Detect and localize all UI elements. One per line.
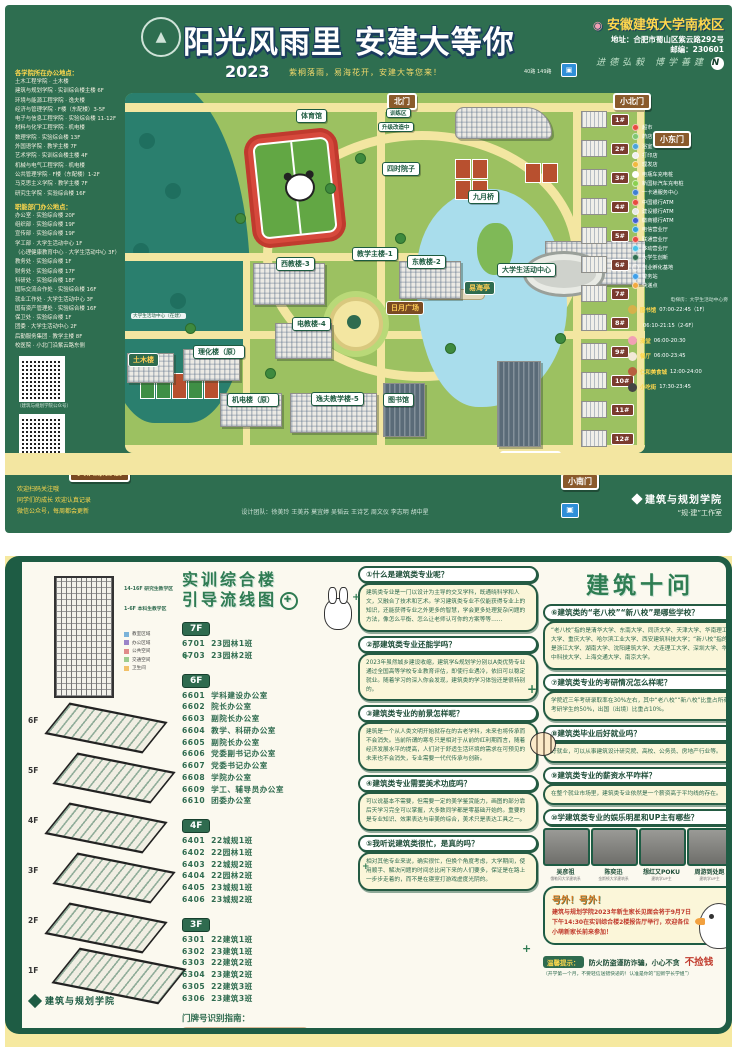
college-item: 外国语学院 · 教学主楼 7F [15, 143, 127, 152]
floor-section-6f: 6F 6601学科建设办公室6602院长办公室6603副院长办公室6604教学、… [182, 668, 354, 808]
goose-doodle-icon: ♥ [699, 903, 732, 949]
qa-block: ⑦建筑类专业的考研情况怎么样呢？ 学院近三年考研录取率在30%左右，其中“老八校… [543, 674, 732, 721]
question-pill: ④建筑类专业需要美术功底吗？ [358, 775, 538, 792]
floor-badge: 6F [182, 674, 210, 688]
poster-frame: 14-16F 研究生教学区 1-6F 本科生教学区 教室区域办公区域公共空间交通… [5, 556, 732, 1034]
floor-mark: 6F [28, 716, 38, 725]
design-credits: 设计团队：徐美玲 王美苏 莫宜婷 吴韬云 王诗艺 周文仪 李志明 胡中星 [125, 507, 545, 516]
qa-main-title: 建筑十问 [543, 566, 732, 600]
place-time: 06:00-23:45 [654, 353, 686, 359]
legend-dot-icon [632, 171, 639, 178]
departments-header: 职能部门办公地点： [15, 202, 127, 211]
rabbit-doodle-icon [324, 598, 352, 630]
dorm-building-icon [581, 256, 607, 273]
gate-north-small: 小北门 [613, 93, 651, 110]
legend-dot-icon [632, 180, 639, 187]
sparkle-icon: + [362, 862, 370, 872]
legend-row: 理发店 [632, 160, 728, 169]
room-list: 670123园林1班670323园林2班 [182, 638, 354, 662]
campus-map-poster: ▲ 阳光风雨里 安建大等你 2023 紫桐落雨，易海花开，安建大等您来！ 40路… [5, 5, 732, 533]
room-directory: 实训综合楼 引导流线图✚ 7F 670123园林1班670323园林2班 6F … [182, 570, 354, 1034]
legend-dot-icon [632, 254, 639, 261]
department-item: 后勤服务集团 · 教学主楼 8F [15, 333, 127, 342]
floor-mark: 3F [28, 866, 38, 875]
hours-row: 仁和美食城12:00-24:00 [628, 367, 728, 376]
legend-label: 建设银行ATM [642, 208, 674, 215]
dorm-building-icon [581, 401, 607, 418]
college-item: 马克思主义学院 · 教学主楼 7F [15, 180, 127, 189]
floor-section-4f: 4F 640122城规1班640222园林1班640322城规2班640422园… [182, 813, 354, 906]
hours-row: 小吃街17:30-23:45 [628, 383, 728, 392]
hours-row: 餐厅06:00-23:45 [628, 352, 728, 361]
door-guide-title: 门牌号识别指南： [182, 1012, 354, 1024]
question-pill: ⑨建筑类专业的薪资水平咋样？ [543, 767, 732, 784]
legend-dot-icon [632, 161, 639, 168]
celebrity-card: 周游到处跑建筑学UP主 [687, 828, 732, 882]
college-item: 材料与化学工程学院 · 机电楼 [15, 124, 127, 133]
tree-icon [445, 343, 456, 354]
floor-section-3f: 3F 630122建筑1班630223建筑1班630322建筑2班630423建… [182, 912, 354, 1005]
celebrity-card: 想红又POKU建筑学UP主 [639, 828, 684, 882]
celebrity-photo [543, 828, 590, 866]
slogan-line: 微信公众号，每周都会更新 [17, 507, 91, 518]
college-item: 公共管理学院 · F楼（东配楼）1-2F [15, 171, 127, 180]
room-row: 6609学工、辅导员办公室 [182, 784, 354, 796]
axonometric-diagram: 14-16F 研究生教学区 1-6F 本科生教学区 教室区域办公区域公共空间交通… [28, 570, 180, 1015]
celebrity-name: 吴彦祖 [543, 867, 588, 876]
legend-row: 移动营业厅 [632, 244, 728, 253]
dorm-number-label: 5# [611, 230, 629, 242]
floor-plate [52, 853, 175, 904]
campus-motto: 进德弘毅 博学善建N [593, 57, 724, 70]
dorm-number-label: 4# [611, 201, 629, 213]
college-name: 建筑与规划学院 [633, 491, 722, 506]
legend-row: 中国银行ATM [632, 197, 728, 206]
tower-note-grad: 14-16F 研究生教学区 [124, 586, 173, 593]
dorm-number-label: 7# [611, 288, 629, 300]
department-item: 财务处 · 实验综合楼 17F [15, 268, 127, 277]
tips-line: 温馨提示： 防火防盗谨防诈骗，小心不贪 不捡钱 （开学第一个月，不要轻信送错快递… [543, 950, 732, 977]
room-row: 6601学科建设办公室 [182, 690, 354, 702]
answer-bubble: 建筑是一个从人类文明开始就存在的古老学科，未来也将传承而不会消失。当前所谓的寒冬… [358, 722, 538, 771]
legend-square-label: 教室区域 [132, 631, 150, 637]
tree-icon [235, 213, 246, 224]
room-row: 670123园林1班 [182, 638, 354, 650]
dorm-number-label: 3# [611, 172, 629, 184]
bus-routes-note: 40路 149路 [524, 68, 552, 75]
celebrity-name: 陈奕迅 [591, 867, 636, 876]
question-pill: ①什么是建筑类专业呢？ [358, 566, 538, 583]
gate-south-small: 小南门 [561, 473, 599, 490]
poster-subtitle: 紫桐落雨，易海花开，安建大等您来！ [289, 67, 442, 78]
legend-label: 电信营业厅 [642, 226, 668, 233]
department-item: 就业工作处 · 大学生活动中心 3F [15, 296, 127, 305]
celebrity-photo [591, 828, 638, 866]
footer-college-block: 建筑与规划学院 “规·建”工作室 [633, 491, 722, 518]
legend-label: 浴室 [642, 143, 652, 150]
legend-label: 一卡通服务中心 [642, 189, 678, 196]
question-pill: ⑩学建筑类专业的娱乐明星和UP主有哪些？ [543, 809, 732, 826]
tower-note-undergrad: 1-6F 本科生教学区 [124, 606, 166, 613]
celebrity-caption: 建筑学UP主 [687, 876, 732, 882]
college-item: 研究生学院 · 实验综合楼 16F [15, 190, 127, 199]
legend-dot-icon [632, 264, 639, 271]
place-icon [628, 383, 637, 392]
qa-block: ⑤我听说建筑类很忙，是真的吗？相对其他专业来说，确实很忙，但换个角度考虑，大学期… [358, 835, 538, 891]
room-row: 630623建筑3班 [182, 993, 354, 1005]
label-activity-center: 大学生活动中心 [497, 263, 556, 277]
celebrity-card: 吴彦祖俄勒冈大学建筑系 [543, 828, 588, 882]
room-row: 6608学院办公室 [182, 772, 354, 784]
tree-icon [185, 323, 196, 334]
floor-mark: 4F [28, 816, 38, 825]
celebrity-photo [639, 828, 686, 866]
door-number-card: 6606 [182, 1027, 308, 1034]
place-time: 06:00-20:30 [654, 338, 686, 344]
legend-square-label: 交通空间 [132, 657, 150, 663]
room-list: 640122城规1班640222园林1班640322城规2班640422园林2班… [182, 835, 354, 906]
college-item: 数理学院 · 实验综合楼 13F [15, 134, 127, 143]
poster-title: 阳光风雨里 安建大等你 [183, 17, 515, 62]
celebrity-row: 吴彦祖俄勒冈大学建筑系陈奕迅金斯顿大学建筑系想红又POKU建筑学UP主周游到处跑… [543, 828, 732, 882]
celebrity-caption: 俄勒冈大学建筑系 [543, 876, 588, 882]
tips-emphasis: 不捡钱 [685, 957, 714, 968]
answer-bubble: 好就业，可以从事建筑设计研究院、高校、公务员、房地产行业等。 [543, 742, 732, 763]
elevator-note: 电梯房：大学生活动中心旁 [670, 296, 728, 303]
qr-code-college [19, 356, 65, 402]
tennis-court [525, 163, 541, 183]
celebrity-name: 周游到处跑 [687, 867, 732, 876]
campus-info: ◉ 安徽建筑大学南校区 地址：合肥市蜀山区紫云路292号 邮编：230601 进… [593, 17, 724, 70]
legend-square-icon [124, 657, 129, 662]
legend-dot-icon [632, 152, 639, 159]
legend-dot-icon [632, 199, 639, 206]
floor-plate [52, 753, 175, 804]
college-item: 电子与信息工程学院 · 实验综合楼 11-12F [15, 115, 127, 124]
building-guide-poster: 14-16F 研究生教学区 1-6F 本科生教学区 教室区域办公区域公共空间交通… [5, 556, 732, 1047]
legend-label: 联通营业厅 [642, 236, 668, 243]
place-icon [628, 367, 637, 376]
celebrity-photo [687, 828, 732, 866]
tennis-court [472, 159, 488, 179]
department-item: 教务处 · 实验综合楼 1F [15, 258, 127, 267]
legend-row: 浴室 [632, 142, 728, 151]
map-pin-icon: ◉ [593, 19, 603, 32]
legend-square-label: 卫生间 [132, 665, 146, 671]
celebrity-name: 想红又POKU [639, 867, 684, 876]
legend-dot-icon [632, 236, 639, 243]
legend-row: 警务站 [632, 272, 728, 281]
answer-bubble: 2023年虽然城乡建设收缩，建筑学&规划学分别以A类优势专业通过全国高等学校专业… [358, 653, 538, 702]
south-boundary [5, 453, 732, 475]
college-item: 环境与能源工程学院 · 逸夫楼 [15, 97, 127, 106]
legend-row: 徽商银行ATM [632, 216, 728, 225]
tree-icon [139, 133, 155, 149]
departments-list: 办公室 · 实验综合楼 20F组织部 · 实验综合楼 19F宣传部 · 实验综合… [15, 212, 127, 351]
tips-body: 防火防盗谨防诈骗，小心不贪 [589, 959, 680, 967]
room-row: 640422园林2班 [182, 870, 354, 882]
room-row: 6610团委办公室 [182, 795, 354, 807]
question-pill: ③建筑类专业的前景怎样呢？ [358, 705, 538, 722]
dorm-number-label: 9# [611, 346, 629, 358]
department-item: 国际交流合作处 · 实验综合楼 16F [15, 286, 127, 295]
tree-icon [165, 183, 181, 199]
dorm-number-label: 8# [611, 317, 629, 329]
department-item: （心理健康教育中心 · 大学生活动中心 3F） [15, 249, 127, 258]
sparkle-icon: + [182, 652, 190, 662]
label-mech: 机电楼（原） [227, 393, 279, 407]
legend-label: 新国标汽车充电桩 [642, 180, 684, 187]
label-main-teaching: 教学主楼-1 [352, 247, 398, 261]
question-pill: ⑦建筑类专业的考研情况怎么样呢？ [543, 674, 732, 691]
question-pill: ⑥建筑类的“老八校”“新八校”是哪些学校？ [543, 604, 732, 621]
floor-plate [44, 903, 167, 954]
legend-row: 创业孵化基地 [632, 262, 728, 271]
room-list: 6601学科建设办公室6602院长办公室6603副院长办公室6604教学、科研办… [182, 690, 354, 808]
department-item: 宣传部 · 实验综合楼 19F [15, 230, 127, 239]
college-item: 建筑与规划学院 · 实训综合楼主楼 6F [15, 87, 127, 96]
legend-square-label: 办公区域 [132, 640, 150, 646]
college-signature: 建筑与规划学院 [30, 994, 115, 1007]
poster-year: 2023 [225, 62, 270, 81]
campus-address: 地址：合肥市蜀山区紫云路292号 [593, 35, 724, 45]
department-item: 办公室 · 实验综合楼 20F [15, 212, 127, 221]
tree-icon [265, 368, 276, 379]
legend-dot-icon [632, 133, 639, 140]
place-name: 小吃街 [640, 383, 656, 391]
label-library: 图书馆 [383, 393, 414, 407]
legend-label: 超市 [642, 124, 652, 131]
legend-label: 中国银行ATM [642, 199, 674, 206]
dorm-building-icon [581, 314, 607, 331]
legend-square-label: 公共空间 [132, 648, 150, 654]
dorm-building-icon [581, 111, 607, 128]
slogan-line: 欢迎扫码关注哦 [17, 485, 91, 496]
legend-label: 理发店 [642, 161, 658, 168]
floorplan-legend-row: 公共空间 [124, 647, 150, 656]
answer-bubble: 在整个就业市场里，建筑类专业依然是一个薪资高于平均线的存在。 [543, 784, 732, 805]
legend-square-icon [124, 666, 129, 671]
question-pill: ⑤我听说建筑类很忙，是真的吗？ [358, 835, 538, 852]
qa-column-left: ①什么是建筑类专业呢？建筑类专业是一门以设计为主导的交叉学科，既通晓科学和人文，… [358, 566, 538, 891]
label-civil: 土木楼 [128, 353, 159, 367]
tree-icon [170, 293, 186, 309]
legend-label: 快递点 [642, 282, 658, 289]
room-row: 6603副院长办公室 [182, 713, 354, 725]
map-legend: 超市药店浴室打印店理发店电瓶车充电桩新国标汽车充电桩一卡通服务中心中国银行ATM… [632, 123, 728, 290]
department-item: 国有资产管理处 · 实验综合楼 16F [15, 305, 127, 314]
tree-icon [395, 233, 406, 244]
legend-row: 电瓶车充电桩 [632, 169, 728, 178]
qa-block: ⑩学建筑类专业的娱乐明星和UP主有哪些？ 吴彦祖俄勒冈大学建筑系陈奕迅金斯顿大学… [543, 809, 732, 882]
tennis-court [455, 159, 471, 179]
legend-row: 超市 [632, 123, 728, 132]
dorm-building-icon [581, 140, 607, 157]
colleges-header: 各学院所在办公地点： [15, 68, 127, 77]
college-item: 土木工程学院 · 土木楼 [15, 78, 127, 87]
legend-row: 联通营业厅 [632, 235, 728, 244]
legend-row: 一卡通服务中心 [632, 188, 728, 197]
label-west-teaching: 西教楼-3 [276, 257, 315, 271]
legend-dot-icon [632, 143, 639, 150]
floor-badge: 3F [182, 918, 210, 932]
place-time: 17:30-23:45 [659, 384, 691, 390]
label-upgrading: 升级改造中 [378, 122, 414, 132]
university-seal-icon: ▲ [141, 17, 181, 57]
room-row: 6605副院长办公室 [182, 737, 354, 749]
place-name: 图书馆 [640, 306, 656, 314]
room-row: 630322建筑2班 [182, 957, 354, 969]
college-logo-icon [631, 493, 642, 504]
dorm-row: 11# [581, 395, 643, 424]
floor-badge: 7F [182, 622, 210, 636]
floorplan-legend-row: 办公区域 [124, 639, 150, 648]
tree-icon [325, 183, 336, 194]
qa-block: ④建筑类专业需要美术功底吗？可以说基本不需要，但需要一定的美学鉴赏能力，画图的部… [358, 775, 538, 831]
tiger-doodle-icon [530, 732, 556, 756]
label-plaza: 日月广场 [386, 301, 424, 315]
hours-row: 澡堂06:00-20:30 [628, 336, 728, 345]
opening-hours: 图书馆07:00-22:45（1F）06:10-21:15（2-6F）澡堂06:… [628, 305, 728, 398]
legend-dot-icon [632, 208, 639, 215]
colleges-list: 土木工程学院 · 土木楼建筑与规划学院 · 实训综合楼主楼 6F环境与能源工程学… [15, 78, 127, 199]
legend-row: 大学生创新 [632, 253, 728, 262]
library-building [383, 383, 425, 437]
room-row: 630522建筑3班 [182, 981, 354, 993]
room-row: 6604教学、科研办公室 [182, 725, 354, 737]
sidebar-slogans: 欢迎扫码关注哦同学们的成长 欢迎认真记录微信公众号，每周都会更新 [17, 485, 91, 517]
dorm-number-label: 6# [611, 259, 629, 271]
dorm-building-icon [581, 343, 607, 360]
celebrity-caption: 建筑学UP主 [639, 876, 684, 882]
place-time: 06:10-21:15（2-6F） [643, 322, 697, 329]
caption-under-construction: 大学生活动中心（在建） [131, 313, 186, 319]
college-item: 艺术学院 · 实训综合楼主楼 4F [15, 152, 127, 161]
place-name: 澡堂 [640, 337, 651, 345]
department-item: 保卫处 · 实验综合楼 1F [15, 314, 127, 323]
bus-stop-icon: ▣ [561, 503, 579, 518]
floorplan-legend-row: 卫生间 [124, 664, 150, 673]
poster-page: ▲ 阳光风雨里 安建大等你 2023 紫桐落雨，易海花开，安建大等您来！ 40路… [0, 0, 737, 1052]
legend-dot-icon [632, 273, 639, 280]
dorm-building-icon [581, 430, 607, 447]
department-item: 学工部 · 大学生活动中心 1F [15, 240, 127, 249]
sparkle-icon: + [522, 942, 531, 955]
room-row: 640523城规1班 [182, 882, 354, 894]
legend-label: 电瓶车充电桩 [642, 171, 673, 178]
label-gym: 体育馆 [296, 109, 327, 123]
qa-block: ②那建筑类专业还能学吗？2023年虽然城乡建设收缩，建筑学&规划学分别以A类优势… [358, 636, 538, 702]
floor-plate [44, 703, 167, 754]
answer-bubble: 建筑类专业是一门以设计为主导的交叉学科，既通晓科学和人文，又融合了技术和艺术。学… [358, 583, 538, 632]
slogan-line: 同学们的成长 欢迎认真记录 [17, 496, 91, 507]
place-icon [628, 321, 637, 330]
dorm-building-icon [581, 372, 607, 389]
legend-dot-icon [632, 226, 639, 233]
room-row: 640623城规2班 [182, 894, 354, 906]
answer-bubble: 相对其他专业来说，确实很忙，但换个角度考虑，大学期间，使用顺手、解决问题的时间总… [358, 852, 538, 891]
tips-subline: （开学第一个月，不要轻信送错快递的！认准是你的“迎新学长学姐”） [543, 970, 732, 977]
lab-complex-building [497, 361, 541, 447]
gym-building [455, 107, 552, 139]
campus-name: ◉ 安徽建筑大学南校区 [593, 17, 724, 35]
legend-row: 打印店 [632, 151, 728, 160]
dorm-number-label: 12# [611, 433, 634, 445]
celebrity-card: 陈奕迅金斯顿大学建筑系 [591, 828, 636, 882]
celebrity-caption: 金斯顿大学建筑系 [591, 876, 636, 882]
floor-mark: 5F [28, 766, 38, 775]
legend-dot-icon [632, 124, 639, 131]
dorm-building-icon [581, 285, 607, 302]
legend-row: 药店 [632, 132, 728, 141]
college-diamond-icon [28, 993, 42, 1007]
qa-block: ①什么是建筑类专业呢？建筑类专业是一门以设计为主导的交叉学科，既通晓科学和人文，… [358, 566, 538, 632]
dorm-number-label: 1# [611, 114, 629, 126]
notice-title: 号外！号外！ [552, 893, 693, 906]
place-icon [628, 305, 637, 314]
place-name: 仁和美食城 [640, 368, 667, 376]
dorm-building-icon [581, 169, 607, 186]
place-name: 餐厅 [640, 352, 651, 360]
compass-icon: ✚ [280, 592, 298, 610]
hours-row: 06:10-21:15（2-6F） [628, 321, 728, 330]
floorplan-legend-row: 教室区域 [124, 630, 150, 639]
college-item: 机械与电气工程学院 · 机电楼 [15, 162, 127, 171]
legend-label: 打印店 [642, 152, 658, 159]
question-pill: ②那建筑类专业还能学吗？ [358, 636, 538, 653]
department-item: 科研处 · 实验综合楼 18F [15, 277, 127, 286]
label-courtyard: 四时院子 [382, 162, 420, 176]
floor-mark: 1F [28, 966, 38, 975]
hours-row: 图书馆07:00-22:45（1F） [628, 305, 728, 314]
floor-badge: 4F [182, 819, 210, 833]
legend-row: 快递点 [632, 281, 728, 290]
room-row: 670323园林2班 [182, 650, 354, 662]
bus-stop-icon: ▣ [561, 63, 577, 77]
tennis-court [542, 163, 558, 183]
department-item: 团委 · 大学生活动中心 2F [15, 323, 127, 332]
legend-label: 移动营业厅 [642, 245, 668, 252]
qa-block: ⑧建筑类毕业后好就业吗？ 好就业，可以从事建筑设计研究院、高校、公务员、房地产行… [543, 725, 732, 763]
label-e-teaching: 电教楼-4 [292, 317, 331, 331]
department-item: 组织部 · 实验综合楼 19F [15, 221, 127, 230]
qa-block: ⑥建筑类的“老八校”“新八校”是哪些学校？ “老八校”指的是清华大学、东南大学、… [543, 604, 732, 670]
room-row: 630423建筑2班 [182, 969, 354, 981]
notice-box: 号外！号外！ 建筑与规划学院2023年新生家长见面会将于9月7日下午14:30在… [543, 886, 732, 945]
qr-caption-college: （建筑与规划学院公众号） [17, 403, 127, 409]
qa-block: ⑨建筑类专业的薪资水平咋样？ 在整个就业市场里，建筑类专业依然是一个薪资高于平均… [543, 767, 732, 805]
tower-illustration [54, 576, 114, 698]
place-icon [628, 336, 637, 345]
place-time: 07:00-22:45（1F） [659, 306, 707, 313]
legend-label: 徽商银行ATM [642, 217, 674, 224]
answer-bubble: “老八校”指的是清华大学、东南大学、同济大学、天津大学、华南理工大学、重庆大学、… [543, 621, 732, 670]
heart-icon: ♥ [731, 894, 732, 905]
legend-dot-icon [632, 189, 639, 196]
legend-row: 建设银行ATM [632, 207, 728, 216]
legend-square-icon [124, 649, 129, 654]
label-pavilion: 易海亭 [464, 281, 495, 295]
dorm-number-label: 11# [611, 404, 634, 416]
legend-label: 药店 [642, 133, 652, 140]
room-row: 640322城规2班 [182, 859, 354, 871]
legend-label: 创业孵化基地 [642, 264, 673, 271]
legend-row: 电信营业厅 [632, 225, 728, 234]
department-item: 校医院 · 小北门沿紫云路东侧 [15, 342, 127, 351]
sun-moon-plaza [329, 297, 383, 351]
college-item: 经济与管理学院 · F楼（东配楼）3-5F [15, 106, 127, 115]
studio-name: “规·建”工作室 [633, 508, 722, 518]
